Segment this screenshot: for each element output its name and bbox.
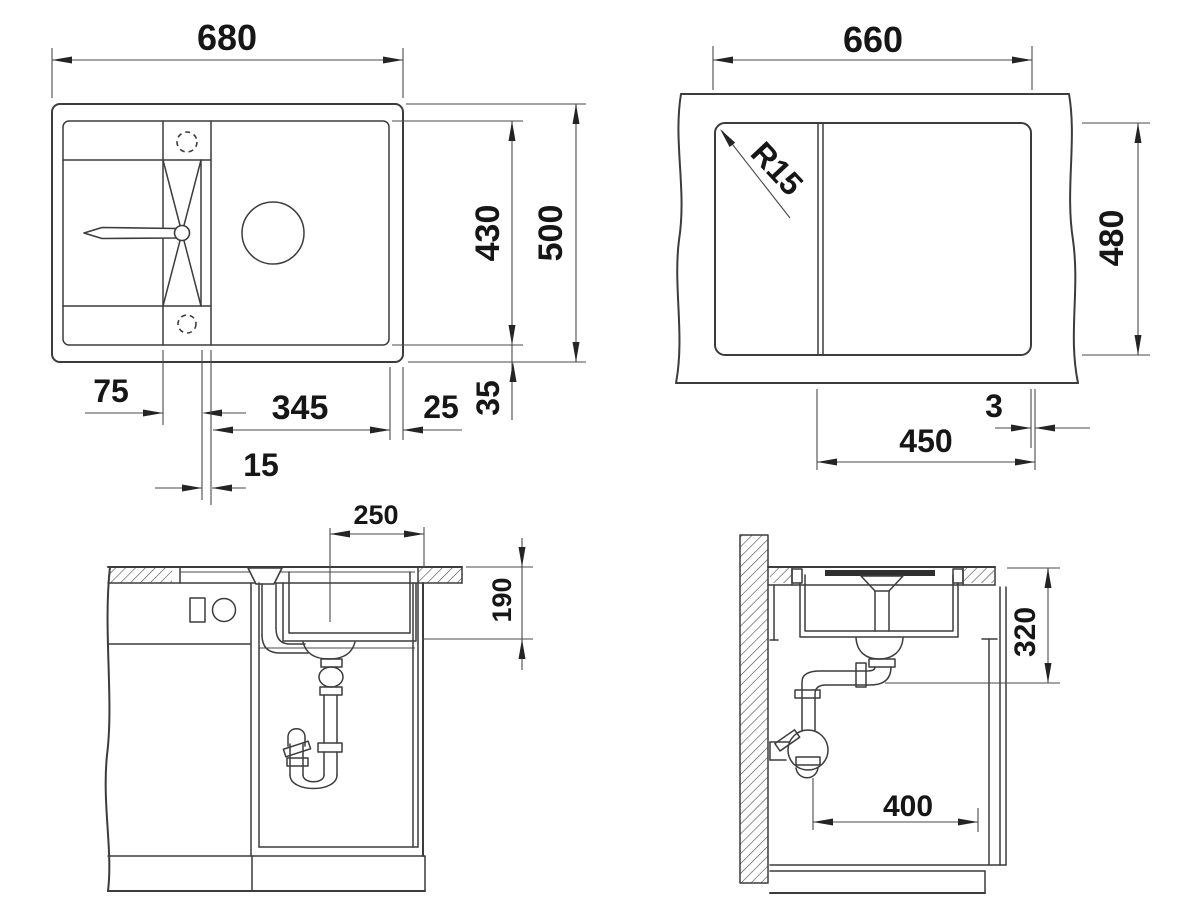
worktop-outline: [676, 94, 1078, 383]
view-side-section: 320 400: [740, 535, 1060, 893]
dim-wall-clearance: 400: [813, 778, 978, 832]
faucet-lever: [84, 228, 176, 239]
cabinet-front: [106, 567, 425, 891]
break-line-left: [676, 94, 682, 383]
dim-outlet-height-value: 320: [1009, 607, 1042, 657]
tap-hole-bottom: [178, 315, 196, 333]
trap-bend: [788, 730, 828, 770]
drain-funnel: [861, 576, 903, 591]
dim-cutout-depth-value: 480: [1093, 210, 1131, 267]
cabinet-side: [770, 587, 1006, 893]
dim-rim-right: 25: [403, 367, 462, 440]
dim-bowl-depth-value: 190: [487, 577, 517, 622]
dim-inner-depth: 430: [392, 121, 523, 420]
control-knob-round: [213, 599, 236, 622]
dim-divider-width: 15: [155, 350, 279, 500]
break-line-cabinet-left: [106, 567, 110, 891]
break-line-right: [1069, 94, 1078, 383]
dim-cutout-width-value: 660: [843, 19, 903, 60]
drawing-page: 680 430 500 35 75: [0, 0, 1200, 900]
drain-and-trap-side: [770, 638, 903, 778]
dim-corner-radius-value: R15: [744, 135, 810, 202]
dim-cutout-depth: 480: [1082, 123, 1150, 355]
dim-rim-bottom-value: 35: [470, 380, 506, 416]
dim-ledge-width-value: 75: [93, 373, 129, 409]
dim-rim-bottom: 35: [470, 362, 517, 416]
view-sink-plan: 680 430 500 35 75: [52, 17, 586, 505]
technical-drawing: 680 430 500 35 75: [0, 0, 1200, 900]
dim-overall-depth-value: 500: [532, 205, 570, 262]
worktop-section: [108, 567, 462, 583]
dim-corner-radius: R15: [720, 129, 810, 218]
control-knob-rect: [190, 598, 205, 622]
view-worktop-cutout: 660 R15 480 3: [676, 19, 1150, 470]
dim-bowl-width-value: 345: [272, 389, 329, 427]
dim-overall-width: 680: [52, 17, 403, 98]
drain-and-trap: [283, 642, 355, 789]
dim-bowl-zone-width-value: 450: [899, 423, 952, 459]
worktop-hatch-right: [418, 568, 462, 583]
drain-hole: [242, 202, 304, 264]
view-front-section: 250 190: [106, 500, 533, 891]
dim-inner-depth-value: 430: [469, 205, 507, 262]
dim-bowl-width: 345: [211, 350, 390, 505]
dim-overall-width-value: 680: [197, 17, 257, 58]
rim-cut-surface: [825, 570, 935, 576]
dim-rim-right-value: 25: [423, 389, 459, 425]
tap-hole-top: [177, 132, 197, 152]
wall-section: [740, 535, 768, 883]
dim-drain-offset-value: 250: [353, 500, 398, 530]
dim-edge-offset-value: 3: [985, 388, 1003, 424]
faucet-pivot: [175, 226, 190, 241]
worktop-hatch-left: [108, 568, 172, 583]
dim-wall-clearance-value: 400: [883, 790, 933, 823]
sink-outline: [52, 104, 403, 362]
dim-divider-width-value: 15: [243, 447, 279, 483]
dim-bowl-depth: 190: [422, 538, 533, 670]
dim-cutout-width: 660: [713, 19, 1032, 90]
dim-edge-offset: 3: [985, 388, 1090, 448]
overflow-funnel: [248, 568, 282, 584]
